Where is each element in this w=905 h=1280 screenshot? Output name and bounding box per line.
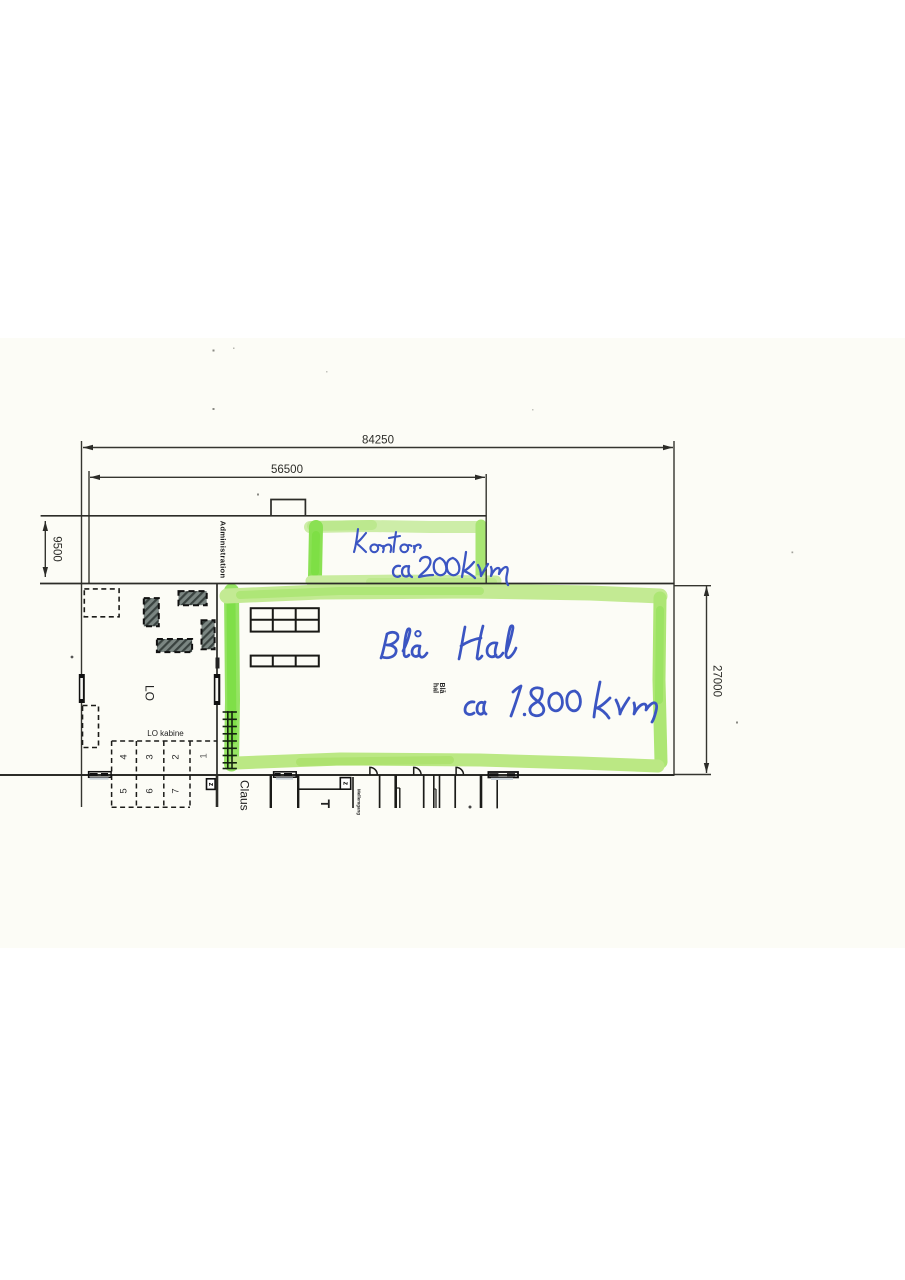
- svg-text:Administration: Administration: [219, 521, 228, 579]
- svg-text:7: 7: [171, 788, 182, 793]
- svg-text:LO kabine: LO kabine: [147, 729, 184, 738]
- svg-text:z: z: [207, 783, 214, 787]
- svg-text:2: 2: [171, 754, 182, 759]
- svg-text:84250: 84250: [362, 435, 394, 447]
- svg-text:1: 1: [199, 753, 210, 758]
- svg-text:6: 6: [145, 788, 156, 793]
- svg-text:Mellemgang: Mellemgang: [357, 789, 362, 815]
- svg-text:56500: 56500: [271, 464, 303, 476]
- svg-text:3: 3: [145, 754, 156, 759]
- svg-text:4: 4: [119, 754, 130, 759]
- svg-text:Claus: Claus: [238, 780, 252, 811]
- svg-text:5: 5: [119, 788, 130, 793]
- svg-text:9500: 9500: [51, 536, 63, 562]
- svg-text:LO: LO: [143, 685, 157, 701]
- svg-text:hal: hal: [431, 683, 438, 693]
- svg-text:z: z: [342, 782, 349, 786]
- svg-text:27000: 27000: [711, 665, 723, 697]
